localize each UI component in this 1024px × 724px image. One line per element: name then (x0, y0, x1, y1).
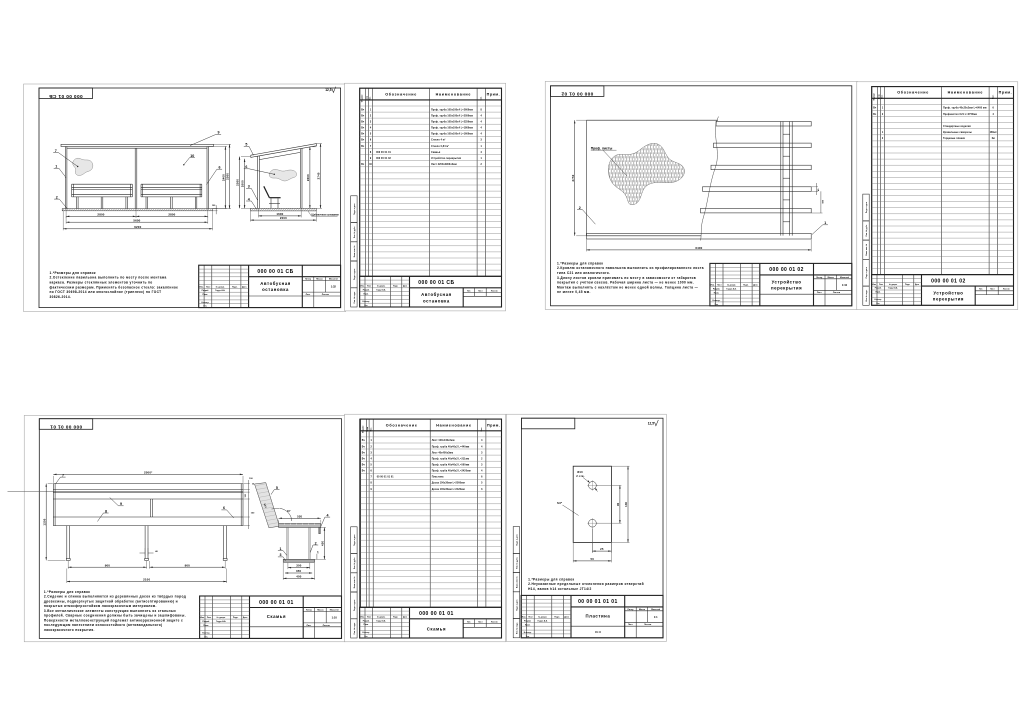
svg-text:6: 6 (219, 166, 221, 170)
svg-text:Утв.: Утв. (364, 636, 368, 638)
svg-text:Подп. и дата: Подп. и дата (354, 268, 356, 280)
svg-text:Пров.: Пров. (525, 624, 531, 626)
svg-text:Гидул А.А.: Гидул А.А. (538, 619, 548, 622)
svg-text:Утв.: Утв. (715, 304, 719, 306)
svg-text:Н14, валов h14 остальные ЈТ14/: Н14, валов h14 остальные ЈТ14/2 (528, 587, 592, 591)
svg-text:000 00 01 01: 000 00 01 01 (419, 611, 454, 617)
svg-text:Проф. труба 40х40х2 L=211мм: Проф. труба 40х40х2 L=211мм (432, 457, 470, 460)
svg-text:каркаса. Размеры стеклянных эл: каркаса. Размеры стеклянных элементов ут… (50, 281, 153, 285)
svg-text:Проф. труба 40х20х2мм L=6400 м: Проф. труба 40х20х2мм L=6400 мм (943, 107, 987, 110)
svg-text:остановка: остановка (423, 298, 450, 303)
svg-text:№ докум.: № докум. (216, 285, 225, 288)
svg-text:300: 300 (296, 564, 301, 568)
svg-text:Торцевые планки: Торцевые планки (943, 138, 965, 140)
svg-text:25: 25 (600, 547, 604, 551)
svg-text:Изм.: Изм. (872, 284, 876, 286)
svg-text:Профнастил С21 L=2750мм: Профнастил С21 L=2750мм (943, 113, 977, 116)
svg-text:1200: 1200 (42, 518, 46, 525)
svg-text:Подп.: Подп. (393, 617, 399, 619)
svg-text:№ докум.: № докум. (538, 616, 547, 619)
svg-text:9: 9 (120, 502, 122, 506)
svg-text:Разраб.: Разраб. (202, 290, 210, 292)
svg-text:6: 6 (223, 506, 225, 510)
svg-text:Инв. № подл.: Инв. № подл. (865, 289, 868, 301)
svg-text:остановка: остановка (262, 287, 289, 292)
svg-text:№ докум.: № докум. (727, 284, 736, 287)
svg-text:000 00 01 01: 000 00 01 01 (376, 152, 391, 154)
svg-text:1: 1 (55, 165, 57, 169)
svg-text:2.Сидение и спинка выполняются: 2.Сидение и спинка выполняются из деревя… (44, 595, 186, 599)
svg-text:8: 8 (105, 509, 107, 513)
svg-text:Скамья: Скамья (427, 626, 446, 631)
svg-text:Гидул А.А.: Гидул А.А. (376, 619, 386, 622)
svg-text:5600: 5600 (133, 218, 140, 222)
svg-text:3.Все металлические элементы к: 3.Все металлические элементы конструкции… (44, 609, 176, 613)
svg-text:Изм.: Изм. (199, 286, 204, 288)
svg-text:Листов: Листов (644, 624, 652, 626)
svg-text:Подп. и дата: Подп. и дата (354, 203, 356, 215)
svg-text:900: 900 (105, 563, 111, 567)
svg-text:Пров.: Пров. (876, 292, 882, 294)
svg-text:2500: 2500 (226, 173, 230, 180)
svg-text:Поз.: Поз. (370, 427, 372, 432)
svg-text:Масштаб: Масштаб (329, 278, 339, 281)
svg-text:Пров.: Пров. (714, 292, 720, 294)
svg-text:3: 3 (248, 185, 250, 189)
svg-text:1: 1 (280, 547, 282, 551)
svg-text:Масса: Масса (828, 277, 835, 279)
svg-text:Н.контр.: Н.контр. (362, 301, 370, 303)
svg-text:Монтаж выполнять с нахлёстом н: Монтаж выполнять с нахлёстом не менее од… (557, 285, 699, 289)
svg-text:2600: 2600 (306, 174, 310, 181)
svg-text:Устройство: Устройство (933, 291, 963, 296)
svg-text:Наименование: Наименование (948, 91, 983, 95)
svg-text:Проф. труба 100х100х4 L=1600мм: Проф. труба 100х100х4 L=1600мм (431, 133, 473, 136)
svg-text:1:10: 1:10 (332, 616, 338, 620)
svg-text:1:32: 1:32 (331, 285, 337, 289)
svg-text:5: 5 (245, 143, 247, 147)
svg-text:1: 1 (824, 221, 826, 225)
svg-text:9: 9 (218, 131, 220, 135)
svg-text:Изм.: Изм. (360, 617, 364, 619)
svg-text:6200: 6200 (134, 225, 141, 229)
svg-text:2.Кровлю остановочного павильо: 2.Кровлю остановочного павильона выполни… (557, 266, 704, 270)
svg-text:Листов: Листов (322, 294, 330, 296)
svg-text:2800: 2800 (97, 213, 104, 217)
svg-text:S3*: S3* (557, 501, 563, 505)
svg-text:Пров.: Пров. (203, 294, 209, 296)
svg-text:Пластина: Пластина (586, 614, 611, 619)
svg-text:Разраб.: Разраб. (203, 621, 211, 623)
svg-text:Лист: Лист (717, 285, 722, 287)
svg-text:2500: 2500 (236, 179, 240, 186)
svg-text:6400: 6400 (695, 246, 702, 250)
svg-text:Листов: Листов (491, 290, 499, 292)
svg-text:Скамья: Скамья (267, 614, 286, 619)
svg-text:1.*Размеры для справок: 1.*Размеры для справок (44, 590, 90, 594)
svg-text:Лист 2200х2900х3мм: Лист 2200х2900х3мм (431, 164, 457, 166)
svg-text:Масштаб: Масштаб (330, 609, 340, 612)
svg-text:перекрытия: перекрытия (933, 297, 964, 302)
svg-text:000 00 01 02: 000 00 01 02 (769, 267, 804, 273)
svg-text:520: 520 (297, 514, 302, 518)
svg-text:Пров.: Пров. (203, 625, 209, 627)
svg-text:Листов: Листов (323, 625, 331, 627)
svg-text:Изм.: Изм. (522, 617, 527, 619)
svg-text:Проф. труба 100х100х4 L=1800мм: Проф. труба 100х100х4 L=1800мм (431, 127, 473, 130)
svg-text:3: 3 (280, 553, 282, 557)
svg-text:Литер: Литер (627, 609, 634, 611)
svg-text:Листов: Листов (491, 621, 499, 623)
svg-text:Автобусная: Автобусная (260, 281, 291, 286)
svg-text:Инв. № дубл.: Инв. № дубл. (515, 557, 518, 569)
svg-text:Взам. инв. №: Взам. инв. № (353, 577, 356, 589)
svg-text:покрытых атмосферостойким лако: покрытых атмосферостойким лакокрасочным … (44, 604, 157, 608)
svg-text:2800: 2800 (168, 213, 175, 217)
svg-text:Лист: Лист (879, 284, 883, 286)
svg-text:Поз.: Поз. (370, 96, 372, 101)
svg-text:2.Неуказанные предельные откло: 2.Неуказанные предельные отклонения разм… (528, 582, 644, 586)
svg-text:№ докум.: № докум. (377, 285, 386, 288)
svg-text:Прим.: Прим. (999, 91, 1012, 95)
svg-text:Изм.: Изм. (360, 286, 364, 288)
svg-text:профилей. Сварные соединения д: профилей. Сварные соединения должны быть… (44, 614, 186, 618)
svg-text:Масштаб: Масштаб (840, 276, 850, 279)
svg-text:Н.контр.: Н.контр. (713, 300, 721, 302)
svg-text:Литер: Литер (305, 279, 312, 281)
svg-text:Литер: Литер (816, 277, 823, 279)
svg-text:Масса: Масса (316, 279, 323, 281)
svg-text:000 00 01 02: 000 00 01 02 (931, 278, 966, 284)
svg-text:Гидул А.А.: Гидул А.А. (216, 620, 226, 623)
svg-text:1:1: 1:1 (654, 615, 658, 619)
svg-text:древесины, подвергнутых защитн: древесины, подвергнутых защитной обработ… (44, 599, 178, 603)
svg-text:Пров.: Пров. (364, 624, 370, 626)
svg-text:1:10: 1:10 (842, 283, 848, 287)
svg-text:Гидул А.А.: Гидул А.А. (888, 287, 898, 290)
svg-text:Лит.: Лит. (467, 290, 471, 292)
svg-text:Н.контр.: Н.контр. (201, 302, 209, 304)
svg-text:перекрытия: перекрытия (771, 285, 802, 290)
svg-text:Подп. и дата: Подп. и дата (516, 599, 518, 611)
svg-text:Изм.: Изм. (200, 617, 205, 619)
svg-text:Прим.: Прим. (487, 92, 500, 96)
svg-text:Поверхности металлоконструкций: Поверхности металлоконструкций подлежат … (44, 618, 183, 622)
svg-text:10°: 10° (287, 510, 291, 513)
svg-text:Инв. № дубл.: Инв. № дубл. (353, 226, 356, 238)
svg-text:2750: 2750 (571, 174, 575, 181)
svg-text:Масса: Масса (639, 609, 646, 611)
svg-text:450: 450 (321, 541, 325, 546)
svg-text:Доска 100х30мм L=2420мм: Доска 100х30мм L=2420мм (432, 488, 465, 491)
svg-text:фактическим размерам. Применят: фактическим размерам. Применять безопасн… (50, 285, 179, 289)
svg-text:Формат: Формат (873, 93, 876, 101)
svg-text:Инв. № подл.: Инв. № подл. (353, 291, 356, 303)
svg-text:1.*Размеры для справок: 1.*Размеры для справок (557, 261, 603, 265)
svg-text:Автобусная: Автобусная (421, 292, 452, 297)
svg-text:Лист: Лист (528, 617, 533, 619)
svg-text:не менее 0,45 мм.: не менее 0,45 мм. (557, 290, 591, 294)
svg-text:Подп. и дата: Подп. и дата (354, 534, 356, 546)
svg-text:Подп.: Подп. (905, 284, 911, 286)
svg-text:Разраб.: Разраб. (363, 619, 370, 622)
svg-text:Н.контр.: Н.контр. (362, 632, 370, 634)
svg-text:2500*: 2500* (144, 471, 153, 475)
svg-text:Подп. и дата: Подп. и дата (516, 533, 518, 545)
svg-text:1.*Размеры для справок: 1.*Размеры для справок (50, 271, 96, 275)
svg-text:Пров.: Пров. (364, 293, 370, 295)
svg-text:Лист: Лист (306, 294, 311, 296)
svg-text:90: 90 (616, 502, 620, 506)
svg-text:000 00 01 02: 000 00 01 02 (561, 92, 593, 97)
svg-text:Масса: Масса (317, 610, 324, 612)
svg-text:Лист: Лист (367, 286, 371, 288)
svg-text:Подп. и дата: Подп. и дата (866, 201, 868, 213)
svg-text:5: 5 (276, 486, 278, 490)
svg-text:Кол.: Кол. (480, 96, 482, 101)
svg-text:Проф. труба 40х40х2 L=440мм: Проф. труба 40х40х2 L=440мм (432, 445, 470, 448)
svg-text:000 00 01 01: 000 00 01 01 (259, 600, 294, 606)
svg-text:Разраб.: Разраб. (713, 288, 721, 290)
svg-text:по ГОСТ 30698-2014 или многосл: по ГОСТ 30698-2014 или многослойное (три… (50, 290, 162, 294)
svg-text:160шт: 160шт (990, 132, 998, 134)
svg-text:00 00 01 01 01: 00 00 01 01 01 (377, 477, 395, 479)
svg-text:Ст.3: Ст.3 (595, 630, 601, 634)
svg-text:Н.контр.: Н.контр. (524, 632, 532, 634)
svg-text:Проф. труба 40х40х2 L=2420мм: Проф. труба 40х40х2 L=2420мм (432, 470, 471, 473)
svg-text:Обозначение: Обозначение (385, 92, 417, 96)
svg-text:2: 2 (56, 195, 58, 199)
svg-text:30826-2014.: 30826-2014. (50, 295, 72, 299)
svg-text:Устройство: Устройство (772, 279, 802, 284)
svg-text:Утв.: Утв. (364, 305, 368, 307)
svg-text:Утв.: Утв. (526, 636, 530, 638)
svg-text:Лист: Лист (990, 289, 995, 291)
svg-text:350: 350 (296, 569, 301, 573)
svg-text:Обозначение: Обозначение (386, 423, 418, 427)
svg-text:Проф. листы: Проф. листы (591, 146, 613, 150)
svg-text:4: 4 (327, 513, 329, 517)
svg-text:Кол.: Кол. (481, 427, 483, 432)
svg-text:Лист: Лист (307, 625, 312, 627)
svg-text:2000: 2000 (280, 216, 287, 220)
svg-text:Пластина: Пластина (432, 477, 444, 479)
svg-text:Разраб.: Разраб. (363, 288, 370, 291)
svg-text:Утв.: Утв. (203, 306, 207, 308)
svg-text:Наименование: Наименование (436, 92, 471, 96)
svg-text:000 00 01 СБ: 000 00 01 СБ (257, 269, 293, 275)
svg-text:50: 50 (591, 557, 595, 561)
svg-text:№ докум.: № докум. (217, 616, 226, 619)
svg-text:000 00 01 СБ: 000 00 01 СБ (49, 94, 83, 99)
svg-text:Доска 100х30мм L=2500мм: Доска 100х30мм L=2500мм (432, 483, 465, 485)
svg-text:Подп.: Подп. (743, 285, 749, 287)
svg-text:Кровельные саморезы: Кровельные саморезы (943, 132, 972, 134)
svg-text:Масштаб: Масштаб (651, 608, 661, 611)
svg-text:2.Остекление павильона выполни: 2.Остекление павильона выполнить по мест… (50, 276, 167, 280)
svg-text:10: 10 (190, 154, 194, 158)
svg-text:Подп.: Подп. (393, 286, 399, 288)
svg-text:7: 7 (55, 149, 57, 153)
svg-text:Утв.: Утв. (204, 636, 208, 638)
svg-text:Подп. и дата: Подп. и дата (354, 599, 356, 611)
svg-text:Взам. инв. №: Взам. инв. № (353, 246, 356, 258)
svg-text:Ø10: Ø10 (577, 470, 583, 474)
svg-text:Прим.: Прим. (487, 423, 500, 427)
svg-text:Лист: Лист (478, 621, 483, 623)
svg-text:Лист: Лист (478, 290, 483, 292)
svg-text:Разраб.: Разраб. (524, 620, 532, 622)
svg-text:последующим нанесением износос: последующим нанесением износостойкого (а… (44, 623, 163, 627)
svg-text:Инв. № подл.: Инв. № подл. (515, 622, 518, 634)
svg-text:Утв.: Утв. (876, 303, 880, 305)
svg-text:4: 4 (248, 197, 250, 201)
svg-text:Лист: Лист (367, 617, 371, 619)
svg-text:Литер: Литер (306, 610, 313, 612)
svg-text:Изм.: Изм. (711, 285, 716, 287)
svg-text:Лист 100х440х3мм: Лист 100х440х3мм (432, 439, 455, 442)
svg-text:Поз.: Поз. (882, 94, 884, 99)
svg-text:Формат: Формат (361, 425, 364, 433)
svg-text:Подп. и дата: Подп. и дата (866, 266, 868, 278)
svg-text:000 00 01 02: 000 00 01 02 (376, 158, 391, 160)
svg-text:2: 2 (315, 541, 317, 545)
svg-text:Скамья: Скамья (431, 152, 441, 154)
svg-text:Инв. № дубл.: Инв. № дубл. (353, 557, 356, 569)
svg-text:покрытия с учётом свесов. Рабо: покрытия с учётом свесов. Рабочая ширина… (557, 281, 694, 285)
svg-text:Устройство перекрытия: Устройство перекрытия (431, 157, 462, 160)
svg-text:000 00 01 01: 000 00 01 01 (50, 425, 82, 430)
svg-text:Подп.: Подп. (232, 286, 238, 288)
svg-text:Проф. труба 40х40х2 L=500мм: Проф. труба 40х40х2 L=500мм (432, 464, 470, 467)
svg-text:00 00 01 01 01: 00 00 01 01 01 (578, 599, 618, 605)
svg-text:Лист: Лист (817, 292, 822, 294)
svg-text:Подп.: Подп. (233, 617, 239, 619)
svg-text:№ докум.: № докум. (889, 283, 898, 286)
svg-text:12,5: 12,5 (325, 88, 331, 92)
svg-text:Листов: Листов (1003, 289, 1011, 291)
svg-text:2740: 2740 (317, 172, 321, 179)
svg-text:Лит.: Лит. (979, 289, 983, 291)
svg-text:типа С21 или аналогичного.: типа С21 или аналогичного. (557, 271, 610, 275)
svg-text:Листов: Листов (833, 292, 841, 294)
svg-text:Подп.: Подп. (554, 617, 560, 619)
svg-text:Гидул А.А.: Гидул А.А. (215, 289, 225, 292)
svg-text:Проф. труба 100х100х4 L=2050мм: Проф. труба 100х100х4 L=2050мм (431, 114, 473, 117)
svg-text:2: 2 (579, 206, 581, 210)
svg-text:Инв. № подл.: Инв. № подл. (353, 622, 356, 634)
svg-text:Обозначение: Обозначение (897, 91, 929, 95)
svg-text:Инв. № дубл.: Инв. № дубл. (865, 224, 868, 236)
svg-text:3.Длину листов кровли принимат: 3.Длину листов кровли принимать по месту… (557, 276, 696, 280)
svg-text:Лист: Лист (628, 624, 633, 626)
svg-text:Наименование: Наименование (436, 423, 471, 427)
svg-text:Взам. инв. №: Взам. инв. № (865, 244, 868, 256)
svg-text:лакокрасочного покрытия.: лакокрасочного покрытия. (44, 628, 95, 632)
svg-text:Лист 40х400х3мм: Лист 40х400х3мм (432, 451, 454, 454)
svg-text:Лист: Лист (207, 617, 212, 619)
svg-text:Формат: Формат (361, 95, 364, 103)
svg-text:000 00 01 СБ: 000 00 01 СБ (418, 280, 454, 286)
svg-text:Кол.: Кол. (992, 94, 994, 99)
svg-text:Н.контр.: Н.контр. (874, 299, 882, 301)
svg-text:Н.контр.: Н.контр. (202, 633, 210, 635)
svg-text:7: 7 (62, 473, 64, 477)
svg-text:Взам. инв. №: Взам. инв. № (515, 576, 518, 588)
svg-text:Лит.: Лит. (467, 621, 471, 623)
svg-text:Лист: Лист (206, 286, 211, 288)
svg-text:12,5: 12,5 (648, 422, 654, 426)
svg-text:Проф. труба 100х100х4 L=2600мм: Проф. труба 100х100х4 L=2600мм (431, 108, 473, 111)
svg-text:Проф. труба 100х100х4 L=2250мм: Проф. труба 100х100х4 L=2250мм (431, 120, 473, 123)
svg-text:130: 130 (624, 501, 628, 506)
svg-text:400: 400 (296, 575, 301, 579)
svg-text:1.*Размеры для справок: 1.*Размеры для справок (528, 577, 574, 581)
svg-text:Стандартные изделия: Стандартные изделия (943, 126, 971, 128)
svg-text:Гидул А.А.: Гидул А.А. (726, 287, 736, 290)
svg-text:6м: 6м (992, 138, 995, 140)
svg-text:900: 900 (185, 563, 191, 567)
svg-text:2100: 2100 (143, 578, 150, 582)
svg-text:№ докум.: № докум. (377, 616, 386, 619)
svg-text:6: 6 (245, 165, 247, 169)
svg-text:Разраб.: Разраб. (875, 287, 882, 290)
svg-text:2000: 2000 (241, 180, 245, 187)
svg-text:Гидул А.А.: Гидул А.А. (376, 288, 386, 291)
